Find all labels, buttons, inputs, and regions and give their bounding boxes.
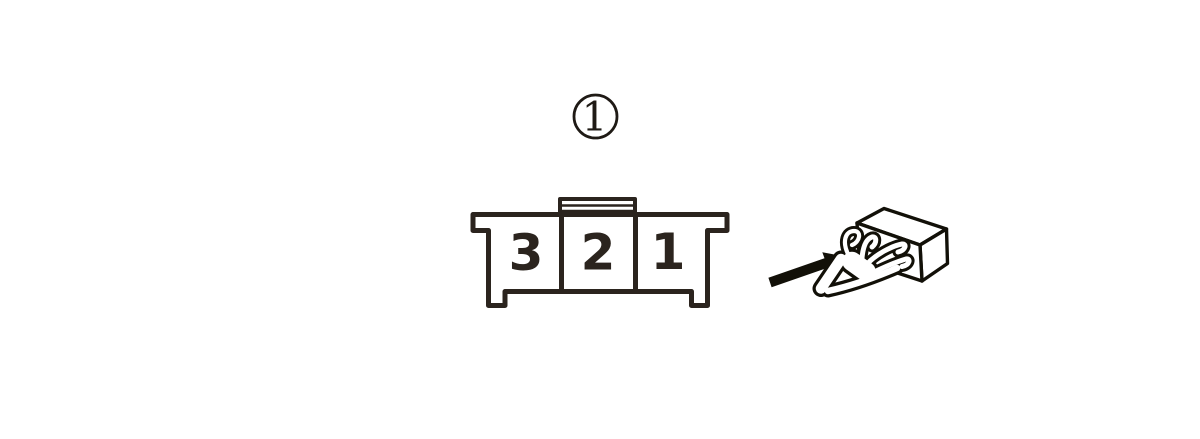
pin-number-3: 3 — [509, 224, 544, 282]
view-direction-indicator — [768, 209, 947, 292]
figure-canvas: 1 3 2 1 — [0, 0, 1200, 439]
connector-pinout-diagram: 1 3 2 1 — [0, 0, 1200, 439]
callout: 1 — [574, 95, 617, 141]
connector-front-view: 3 2 1 — [473, 199, 727, 306]
callout-number: 1 — [582, 95, 607, 141]
hand-palm-fill — [852, 262, 866, 272]
pin-number-2: 2 — [581, 224, 616, 282]
pin-number-1: 1 — [651, 223, 686, 281]
